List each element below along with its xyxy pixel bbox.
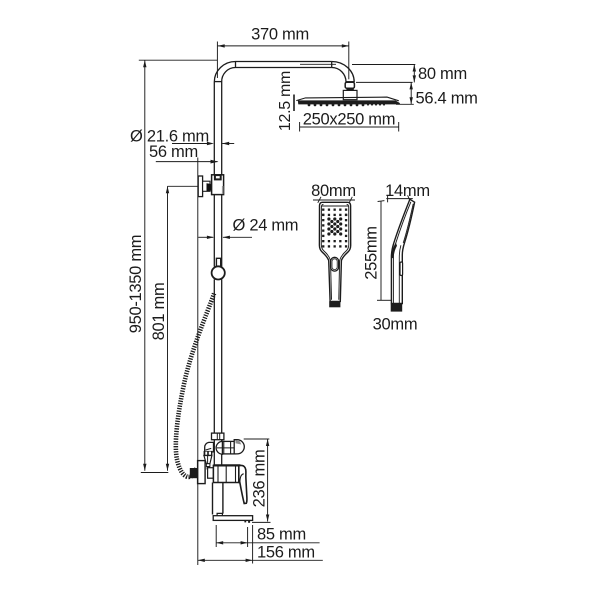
svg-text:236 mm: 236 mm	[251, 450, 269, 508]
svg-text:56.4 mm: 56.4 mm	[416, 90, 478, 108]
svg-text:801 mm: 801 mm	[150, 283, 168, 341]
svg-text:Ø 24 mm: Ø 24 mm	[233, 216, 299, 234]
svg-text:56 mm: 56 mm	[149, 143, 198, 161]
svg-text:12.5 mm: 12.5 mm	[277, 71, 294, 131]
svg-text:14mm: 14mm	[385, 182, 430, 200]
svg-text:156 mm: 156 mm	[257, 544, 315, 562]
svg-text:30mm: 30mm	[373, 316, 418, 334]
svg-text:80mm: 80mm	[311, 182, 356, 200]
svg-text:370 mm: 370 mm	[251, 26, 309, 44]
svg-text:255mm: 255mm	[363, 226, 381, 280]
svg-text:950-1350 mm: 950-1350 mm	[127, 235, 145, 334]
svg-text:80 mm: 80 mm	[418, 65, 467, 83]
svg-text:250x250 mm: 250x250 mm	[303, 110, 395, 128]
svg-text:85 mm: 85 mm	[257, 526, 306, 544]
